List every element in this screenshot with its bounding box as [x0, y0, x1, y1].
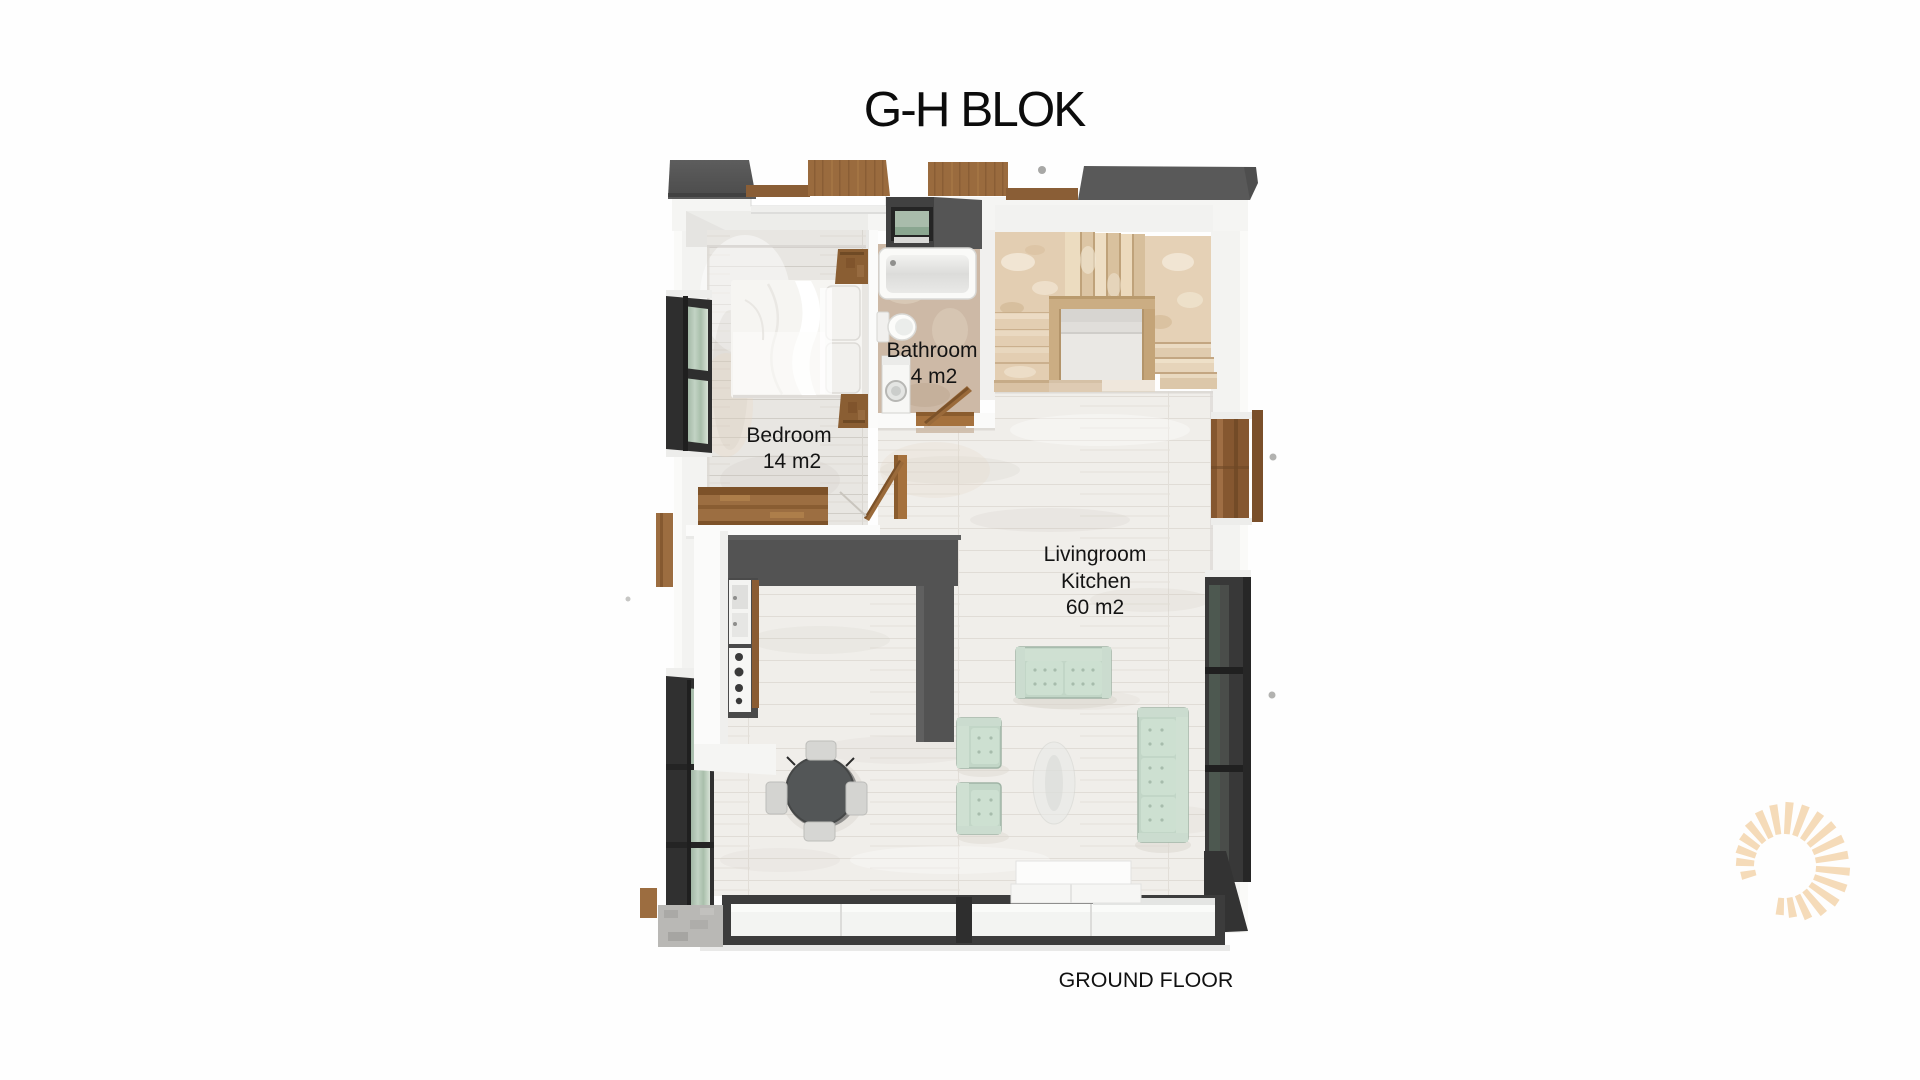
- svg-text:GROUND FLOOR: GROUND FLOOR: [1059, 968, 1234, 992]
- svg-text:Kitchen: Kitchen: [1061, 570, 1131, 593]
- svg-text:4 m2: 4 m2: [911, 365, 958, 388]
- svg-text:14 m2: 14 m2: [763, 450, 821, 473]
- svg-text:60 m2: 60 m2: [1066, 596, 1124, 619]
- svg-text:G-H BLOK: G-H BLOK: [864, 82, 1087, 137]
- svg-text:Bathroom: Bathroom: [886, 339, 977, 362]
- svg-text:Livingroom: Livingroom: [1044, 543, 1147, 566]
- svg-text:Bedroom: Bedroom: [746, 424, 831, 447]
